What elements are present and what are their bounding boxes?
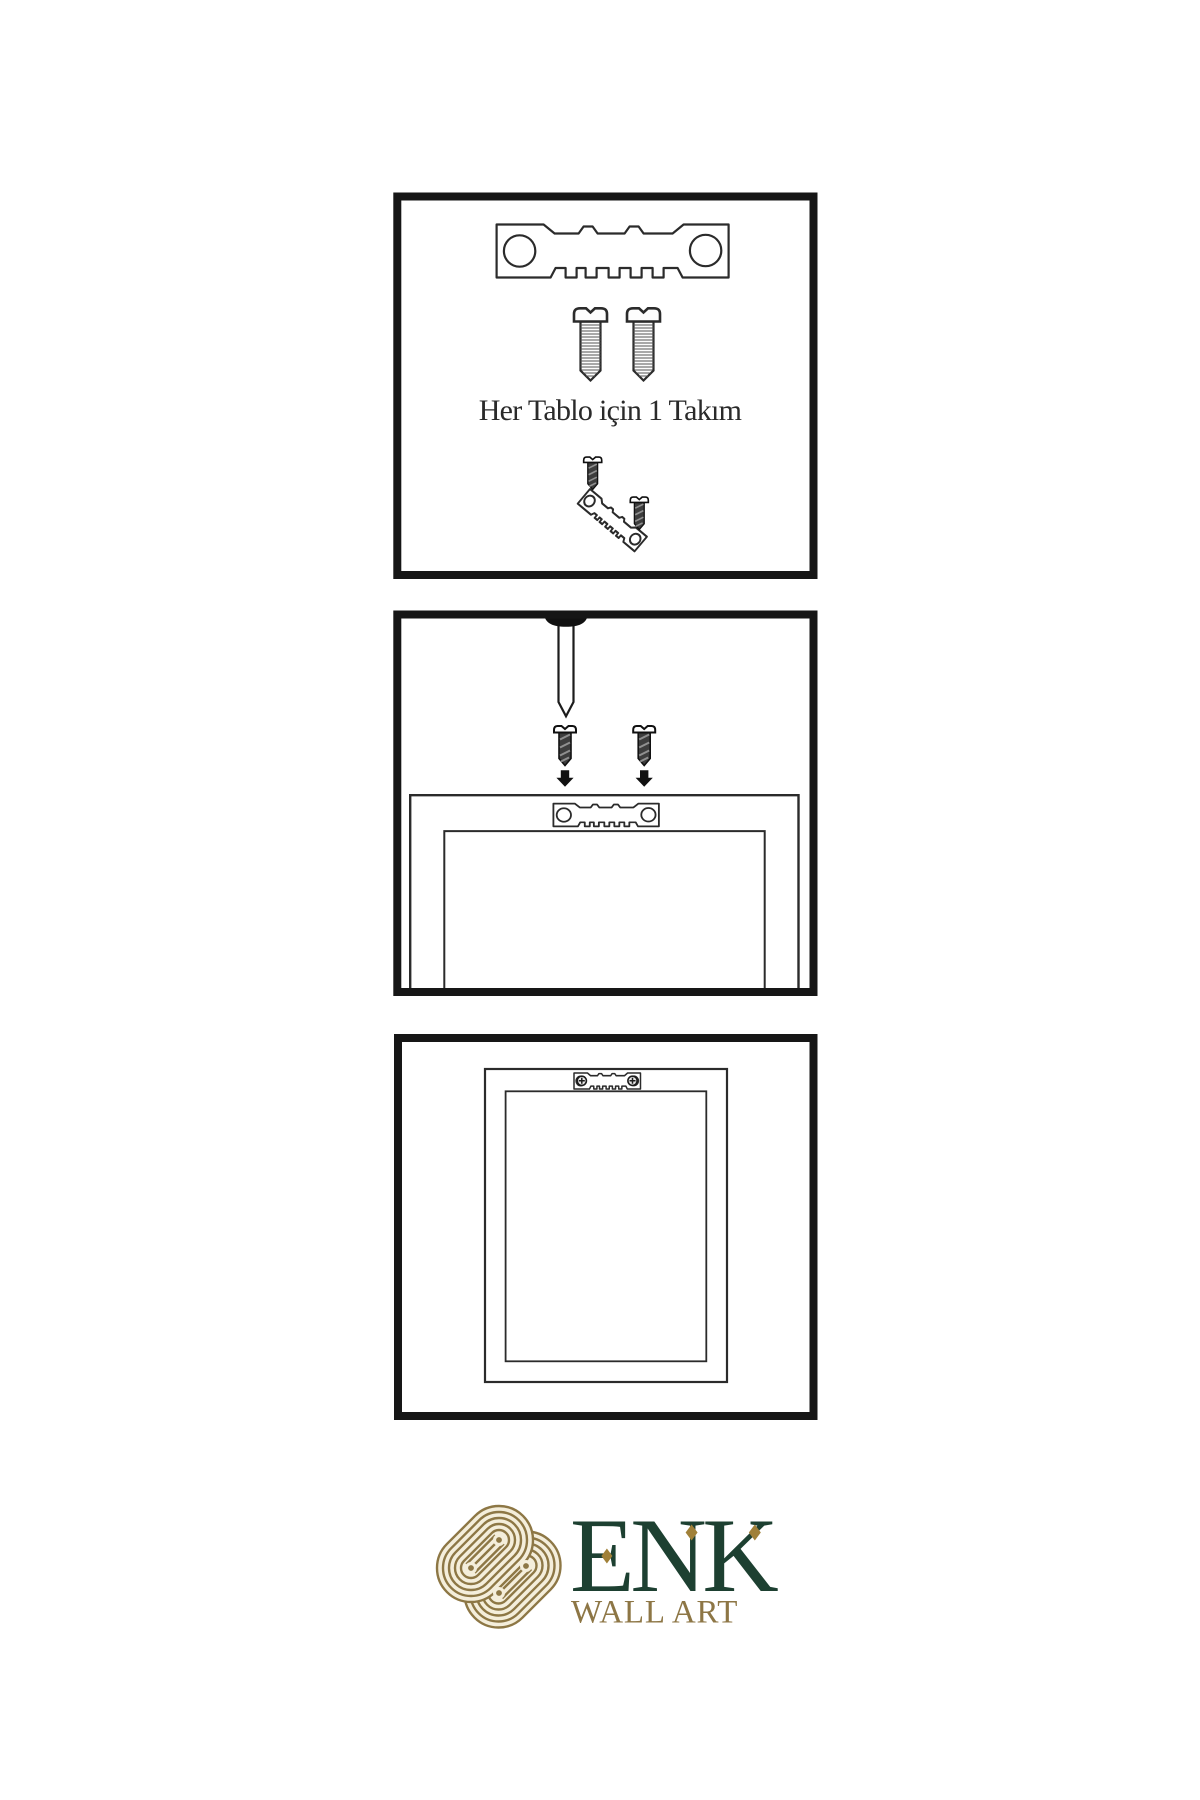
svg-text:WALL ART: WALL ART (571, 1595, 738, 1631)
svg-text:Her Tablo için 1 Takım: Her Tablo için 1 Takım (479, 394, 742, 427)
